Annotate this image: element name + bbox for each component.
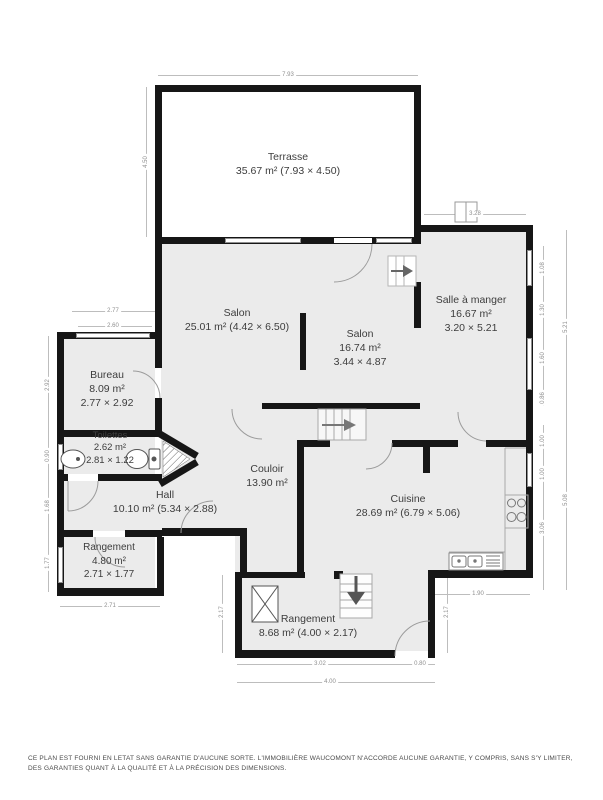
dimension-label: 2.60 [105,323,121,329]
dimension-label: 1.60 [540,350,546,366]
door-arc [458,412,486,441]
dimension-label: 1.30 [540,302,546,318]
dimension-label: 4.50 [143,154,149,170]
room-label-salon-2: Salon 16.74 m² 3.44 × 4.87 [334,327,387,370]
dimension-label: 2.92 [45,377,51,393]
dimension-label: 5.08 [563,492,569,508]
dimension-label: 2.77 [105,308,121,314]
dimension-label: 0.80 [412,661,428,667]
dimension-label: 0.90 [45,448,51,464]
dimension-label: 5.21 [563,319,569,335]
room-label-toilettes: Toilettes 2.62 m² 2.81 × 1.22 [86,430,134,467]
door-arc [366,443,392,469]
dimension-label: 1.77 [45,555,51,571]
dimension-label: 1.90 [470,591,486,597]
disclaimer-text: CE PLAN EST FOURNI EN LETAT SANS GARANTI… [28,754,580,774]
room-label-terrasse: Terrasse 35.67 m² (7.93 × 4.50) [236,150,340,178]
sloped-wall [160,434,197,484]
room-label-rangement-bas: Rangement 8.68 m² (4.00 × 2.17) [259,612,357,640]
dimension-label: 1.68 [45,498,51,514]
dimension-label: 2.71 [102,603,118,609]
room-label-salon-1: Salon 25.01 m² (4.42 × 6.50) [185,306,289,334]
room-label-bureau: Bureau 8.09 m² 2.77 × 2.92 [81,368,134,411]
door-arc [68,481,98,511]
door-arc [334,244,372,282]
room-label-cuisine: Cuisine 28.69 m² (6.79 × 5.06) [356,492,460,520]
door-arc [232,409,262,439]
dimension-label: 1.08 [540,260,546,276]
floor-plan: Terrasse 35.67 m² (7.93 × 4.50) Salon 25… [0,0,603,800]
dimension-label: 1.00 [540,433,546,449]
dimension-label: 2.17 [219,604,225,620]
room-label-couloir: Couloir 13.90 m² [246,462,287,490]
dimension-label: 7.93 [280,72,296,78]
room-label-hall: Hall 10.10 m² (5.34 × 2.88) [113,488,217,516]
steps-icon [388,256,416,286]
door-arc [395,621,430,656]
room-label-salle-a-manger: Salle à manger 16.67 m² 3.20 × 5.21 [436,293,507,336]
dimension-label: 2.17 [444,604,450,620]
kitchen-sink-icon [449,553,503,570]
kitchen-counter [449,448,526,570]
door-arc [133,371,160,398]
dimension-label: 3.02 [312,661,328,667]
dimension-label: 3.28 [467,211,483,217]
sink-icon [61,450,85,468]
dimension-label: 0.86 [540,390,546,406]
dimension-label: 4.00 [322,679,338,685]
dimension-label: 3.06 [540,520,546,536]
stove-icon [505,495,528,528]
room-label-rangement-gauche: Rangement 4.80 m² 2.71 × 1.77 [83,541,135,582]
dimension-label: 1.00 [540,466,546,482]
stairs-icon [318,409,366,440]
